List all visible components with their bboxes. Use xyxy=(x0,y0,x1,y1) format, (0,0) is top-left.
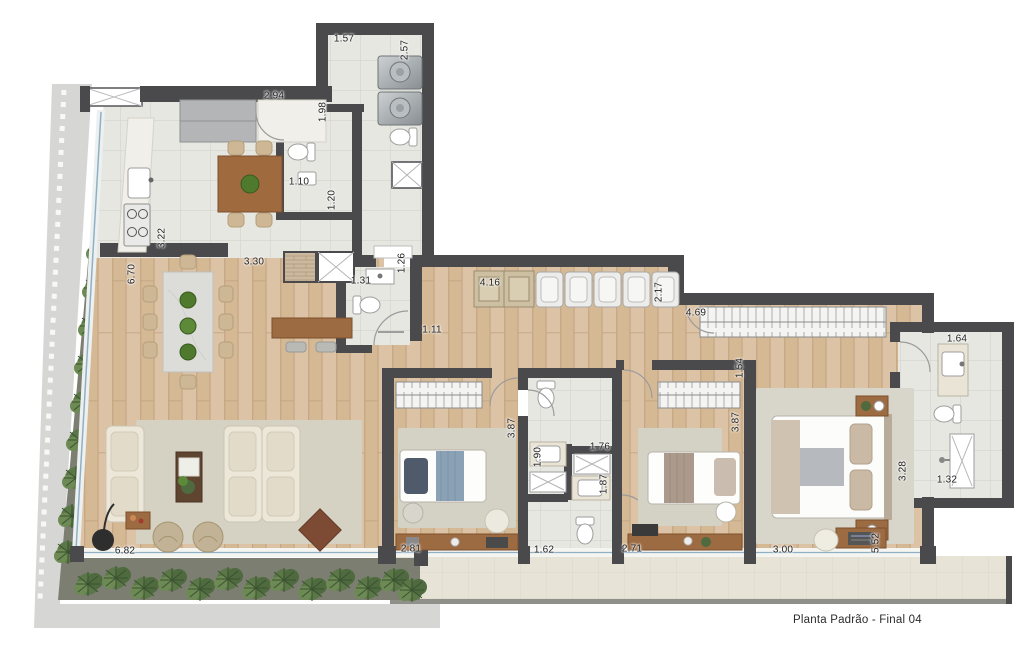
brick-shaft xyxy=(284,252,316,282)
chair xyxy=(814,529,838,551)
table-plant xyxy=(241,175,259,193)
side-table xyxy=(716,502,736,522)
dim-bedroom2-depth: 3.87 xyxy=(731,412,742,432)
washing-machine-1 xyxy=(378,56,422,89)
dim-laundry-width: 1.57 xyxy=(334,34,354,45)
dim-kitchen-opening: 3.30 xyxy=(244,257,264,268)
floor-lamp xyxy=(92,529,114,551)
shower-head xyxy=(939,457,945,463)
headboard xyxy=(884,414,892,520)
dim-master-wardrobe: 4.69 xyxy=(686,308,706,319)
plan-caption: Planta Padrão - Final 04 xyxy=(793,614,922,626)
dim-kitchen-counter: 3.22 xyxy=(157,228,168,248)
dim-hall-width: 1.11 xyxy=(422,325,442,336)
dim-lavabo-width: 1.31 xyxy=(351,276,371,287)
hall-closets xyxy=(474,271,679,307)
balcony xyxy=(390,556,1012,604)
laptop xyxy=(486,537,508,548)
pillow xyxy=(404,458,428,494)
washing-machine-2 xyxy=(378,92,422,125)
dim-lavabo-depth: 1.26 xyxy=(397,253,408,273)
dim-service-wc-width: 1.10 xyxy=(289,177,309,188)
dim-master-length: 5.52 xyxy=(871,533,882,553)
dim-living-width: 6.82 xyxy=(115,546,135,557)
bath2-toilet xyxy=(576,517,594,544)
bar-stool xyxy=(286,342,306,352)
pillow xyxy=(850,424,872,464)
lavabo-toilet xyxy=(353,296,380,314)
side-table xyxy=(403,503,423,523)
dim-master-entry: 1.54 xyxy=(735,358,746,378)
console-bar xyxy=(272,318,352,338)
armchair xyxy=(485,509,509,533)
dim-bath-length: 1.62 xyxy=(534,545,554,556)
blanket xyxy=(436,451,464,501)
bath1-toilet xyxy=(537,381,555,408)
pillow xyxy=(714,458,736,496)
dim-master-bath-width: 1.32 xyxy=(937,475,957,486)
dim-living-length: 6.70 xyxy=(127,264,138,284)
dim-service-wc-length: 1.20 xyxy=(327,190,338,210)
blanket xyxy=(772,420,800,514)
dim-bedroom1-width: 2.81 xyxy=(401,544,421,555)
sofa xyxy=(262,426,300,522)
pouf-chair xyxy=(193,522,223,552)
floor-plan: 1.57 2.57 2.94 1.98 1.10 1.20 3.22 6.70 … xyxy=(0,0,1024,647)
dim-bath2-width: 1.76 xyxy=(590,442,610,453)
dim-master-bath-vanity: 1.64 xyxy=(947,334,967,345)
sofa xyxy=(224,426,262,522)
printer xyxy=(632,524,658,536)
dim-bedroom2-width: 2.71 xyxy=(622,544,642,555)
bath2-shower xyxy=(574,454,610,474)
dim-closet-run-length: 4.16 xyxy=(480,278,500,289)
dim-service-wc-depth: 1.98 xyxy=(318,102,329,122)
bath1-shower xyxy=(530,472,566,492)
throw xyxy=(800,448,844,486)
blanket xyxy=(664,453,694,503)
dim-master-width: 3.00 xyxy=(773,545,793,556)
side-table xyxy=(126,512,150,529)
dim-bedroom1-depth: 3.87 xyxy=(507,418,518,438)
pillow xyxy=(850,470,872,510)
dim-bath2-vanity: 1.87 xyxy=(599,474,610,494)
dim-bath1-width: 1.90 xyxy=(533,447,544,467)
dim-kitchen-top-width: 2.94 xyxy=(264,91,284,102)
dim-master-bath-depth: 3.28 xyxy=(898,461,909,481)
dim-closet-run-depth: 2.17 xyxy=(654,282,665,302)
wc-toilet xyxy=(288,143,315,161)
kitchen-sink xyxy=(128,168,150,198)
pouf-chair xyxy=(153,522,183,552)
dim-laundry-depth: 2.57 xyxy=(400,40,411,60)
service-toilet xyxy=(390,128,417,146)
toilet xyxy=(934,405,961,423)
bar-stool xyxy=(316,342,336,352)
